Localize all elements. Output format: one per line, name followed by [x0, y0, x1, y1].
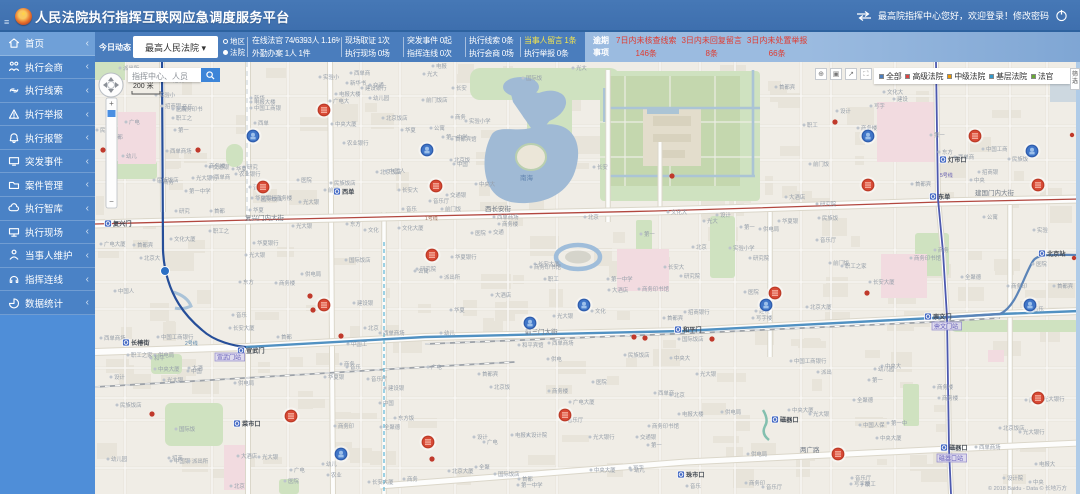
- svg-text:−: −: [109, 197, 114, 206]
- svg-text:+: +: [109, 99, 114, 108]
- svg-text:200 米: 200 米: [133, 81, 154, 90]
- svg-text:© 2018 Baidu - Data © 长地万方: © 2018 Baidu - Data © 长地万方: [988, 484, 1068, 492]
